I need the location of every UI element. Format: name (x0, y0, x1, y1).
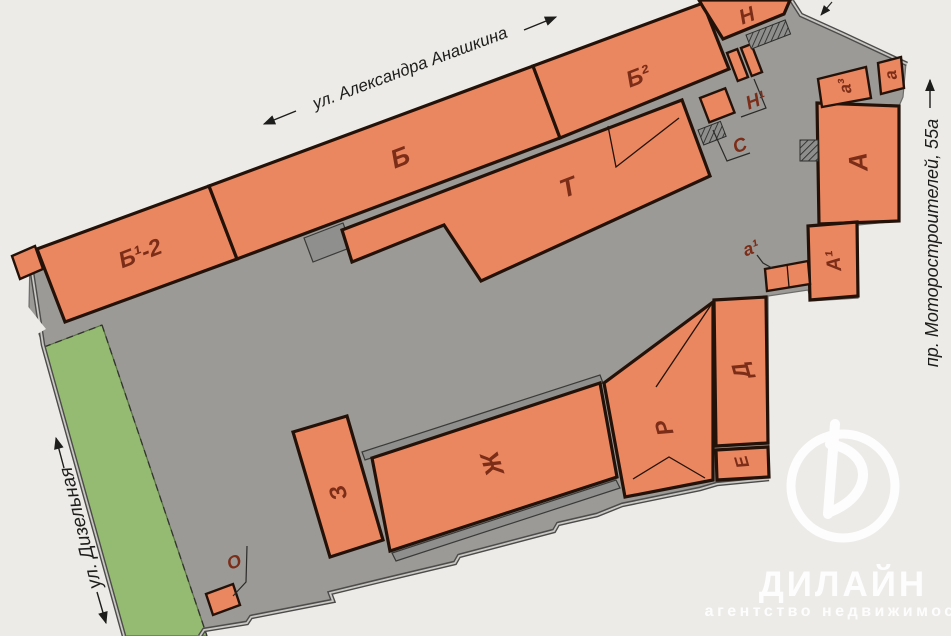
label-building-a-main: А (842, 152, 873, 174)
stairs-hatch-a (800, 140, 818, 161)
site-plan-page: Б¹-2 Б Б² Н Н¹ С Т А А¹ а³ а а¹ Д Е Р Ж … (0, 0, 951, 636)
logo-title: ДИЛАЙН (759, 564, 927, 604)
street-label-right: пр. Моторостроителей, 55а (922, 119, 942, 367)
site-plan-svg: Б¹-2 Б Б² Н Н¹ С Т А А¹ а³ а а¹ Д Е Р Ж … (0, 0, 951, 636)
label-building-a1-main: А¹ (822, 249, 847, 274)
logo-tagline: агентство недвижимости (705, 603, 951, 620)
